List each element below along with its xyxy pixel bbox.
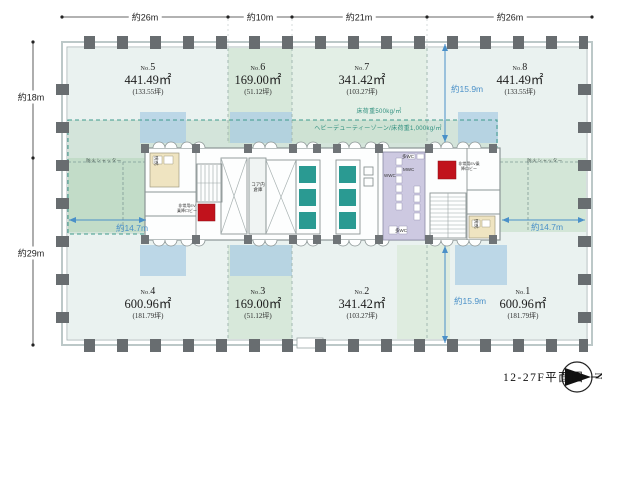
dim-top-26m-left: 約26m bbox=[129, 11, 162, 24]
ev-lobby-label-right: 非常用EV乗降ロビー bbox=[458, 162, 480, 172]
room-label-no4: No.4 600.96㎡ (181.79坪) bbox=[125, 286, 172, 321]
room-area: 441.49㎡ bbox=[125, 73, 172, 88]
room-area: 169.00㎡ bbox=[235, 73, 282, 88]
room-label-no1: No.1 600.96㎡ (181.79坪) bbox=[500, 286, 547, 321]
wc-men-label: MWC bbox=[403, 167, 414, 172]
floor-plan-page: 約26m 約10m 約21m 約26m 約18m 約29m 約14.7m 約14… bbox=[0, 0, 640, 480]
perimeter-columns-bottom bbox=[84, 339, 588, 352]
room-area: 600.96㎡ bbox=[500, 297, 547, 312]
room-tsubo: (51.12坪) bbox=[235, 312, 282, 321]
compass-north-label: N bbox=[593, 373, 603, 380]
room-no: No.5 bbox=[125, 62, 172, 73]
emergency-elevator-left bbox=[198, 204, 215, 221]
perimeter-columns-top bbox=[84, 36, 588, 49]
room-label-no3: No.3 169.00㎡ (51.12坪) bbox=[235, 286, 282, 321]
hot-water-label-right: 湯沸 bbox=[474, 219, 480, 229]
room-label-no8: No.8 441.49㎡ (133.55坪) bbox=[497, 62, 544, 97]
dim-depth-left: 約14.7m bbox=[116, 222, 148, 234]
dim-depth-top-right: 約15.9m bbox=[451, 83, 483, 95]
page-title: 12-27F平面図 bbox=[503, 369, 584, 385]
room-no: No.6 bbox=[235, 62, 282, 73]
dim-depth-bottom-right: 約15.9m bbox=[454, 295, 486, 307]
core-storage-label: コア内倉庫 bbox=[250, 182, 266, 192]
room-label-no2: No.2 341.42㎡ (103.27坪) bbox=[339, 286, 386, 321]
dim-top-26m-right: 約26m bbox=[494, 11, 527, 24]
wc-multi-top-label: 多WC bbox=[402, 154, 414, 159]
room-label-no5: No.5 441.49㎡ (133.55坪) bbox=[125, 62, 172, 97]
room-no: No.2 bbox=[339, 286, 386, 297]
room-no: No.4 bbox=[125, 286, 172, 297]
floor-load-standard: 床荷重500kg/㎡ bbox=[356, 106, 401, 115]
room-no: No.7 bbox=[339, 62, 386, 73]
room-label-no6: No.6 169.00㎡ (51.12坪) bbox=[235, 62, 282, 97]
room-tsubo: (133.55坪) bbox=[497, 88, 544, 97]
room-tsubo: (103.27坪) bbox=[339, 312, 386, 321]
perimeter-columns-right bbox=[578, 84, 591, 326]
perimeter-columns-left bbox=[56, 84, 69, 326]
room-area: 341.42㎡ bbox=[339, 73, 386, 88]
room-label-no7: No.7 341.42㎡ (103.27坪) bbox=[339, 62, 386, 97]
dim-top-10m: 約10m bbox=[244, 11, 277, 24]
room-area: 600.96㎡ bbox=[125, 297, 172, 312]
fire-shutter-label-left: 防火シャッター bbox=[86, 158, 122, 164]
wc-women-label: WWC bbox=[384, 173, 396, 178]
dim-depth-right: 約14.7m bbox=[531, 221, 563, 233]
emergency-elevator-right bbox=[438, 161, 456, 179]
room-tsubo: (103.27坪) bbox=[339, 88, 386, 97]
room-no: No.1 bbox=[500, 286, 547, 297]
floor-load-heavy-duty: ヘビーデューティーゾーン/床荷重1,000kg/㎡ bbox=[314, 123, 442, 132]
room-tsubo: (181.79坪) bbox=[500, 312, 547, 321]
hot-water-label-left: 湯沸 bbox=[154, 156, 160, 166]
room-tsubo: (181.79坪) bbox=[125, 312, 172, 321]
room-area: 441.49㎡ bbox=[497, 73, 544, 88]
ev-lobby-label-left: 非常用EV乗降ロビー bbox=[177, 204, 197, 214]
room-area: 169.00㎡ bbox=[235, 297, 282, 312]
fire-shutter-label-right: 防火シャッター bbox=[527, 158, 563, 164]
room-area: 341.42㎡ bbox=[339, 297, 386, 312]
wc-multi-bottom-label: 多WC bbox=[395, 228, 407, 233]
room-tsubo: (133.55坪) bbox=[125, 88, 172, 97]
room-no: No.3 bbox=[235, 286, 282, 297]
dim-top-21m: 約21m bbox=[343, 11, 376, 24]
dim-left-18m: 約18m bbox=[15, 91, 48, 104]
room-tsubo: (51.12坪) bbox=[235, 88, 282, 97]
dim-left-29m: 約29m bbox=[15, 247, 48, 260]
room-no: No.8 bbox=[497, 62, 544, 73]
floor-plan-drawing bbox=[0, 0, 640, 480]
